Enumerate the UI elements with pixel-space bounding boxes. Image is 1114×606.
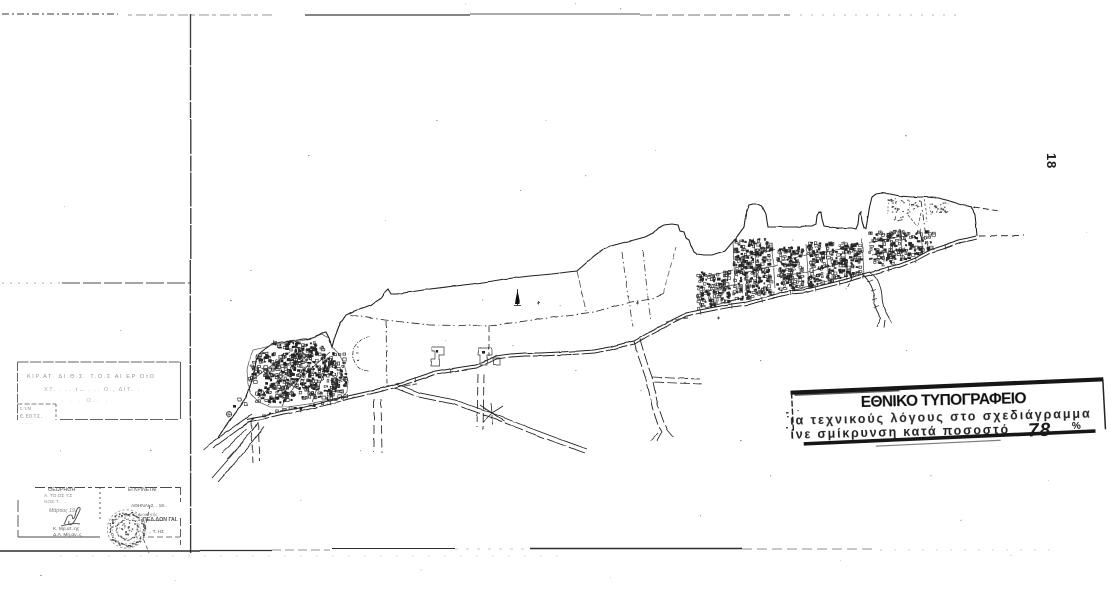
svg-text:τ. τ.Ν: τ. τ.Ν: [20, 406, 31, 411]
svg-text:Μάρτιος 19..: Μάρτιος 19..: [49, 508, 78, 514]
svg-text:ΘΕΩΡΗΘΗ: ΘΕΩΡΗΘΗ: [48, 487, 75, 493]
svg-text:%: %: [1072, 421, 1081, 432]
svg-text:ΑΘΗΝΑΙ 2, . 19..: ΑΘΗΝΑΙ 2, . 19..: [131, 503, 167, 509]
svg-text:Δ.Λ. Μη.αν..ς: Δ.Λ. Μη.αν..ς: [53, 532, 82, 538]
svg-text:18: 18: [1044, 153, 1059, 169]
svg-text:Κ. Μρ.ατ..ης: Κ. Μρ.ατ..ης: [53, 526, 80, 532]
svg-text:. .. Τ..ΗΣ: . .. Τ..ΗΣ: [146, 529, 164, 535]
svg-text:Α. ΤΟ.ΟΣ Τ.Σ: Α. ΤΟ.ΟΣ Τ.Σ: [44, 493, 72, 499]
svg-text:Ε. ΕΟ.Τ.Σ ,: Ε. ΕΟ.Τ.Σ ,: [20, 414, 43, 419]
svg-text:. . . Ο.. .: . . . Ο.. .: [62, 398, 107, 404]
svg-text:ΠΕΔ.ΔΩΝ ΓΑΙ.: ΠΕΔ.ΔΩΝ ΓΑΙ.: [143, 517, 178, 523]
svg-text:78: 78: [1028, 420, 1052, 442]
svg-text:ΝΟΕ.Τ. . ..: ΝΟΕ.Τ. . ..: [44, 499, 66, 505]
svg-text:ΕΓΚΡΙΝΕΤΑΙ: ΕΓΚΡΙΝΕΤΑΙ: [128, 487, 157, 493]
svg-text:. .. . .: . .. . .: [22, 420, 32, 425]
svg-text:ΧΤ. . .. τ . . .. Ο., ΔΙΤ. .: ΧΤ. . .. τ . . .. Ο., ΔΙΤ. .: [44, 387, 139, 393]
svg-text:ΚΙΡ.ΑΤ. ΔΙ.Θ.Σ. Τ.Ο.Σ ΑΙ Ε: ΚΙΡ.ΑΤ. ΔΙ.Θ.Σ. Τ.Ο.Σ ΑΙ ΕΡ ΟτΟ: [27, 374, 155, 380]
